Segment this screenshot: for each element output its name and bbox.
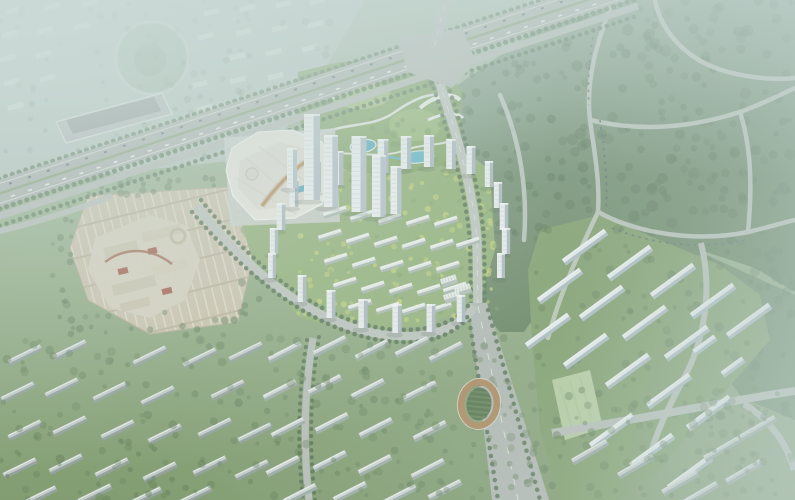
aerial-render-stage — [0, 0, 795, 500]
haze-overlay — [0, 0, 795, 500]
aerial-masterplan-render — [0, 0, 795, 500]
